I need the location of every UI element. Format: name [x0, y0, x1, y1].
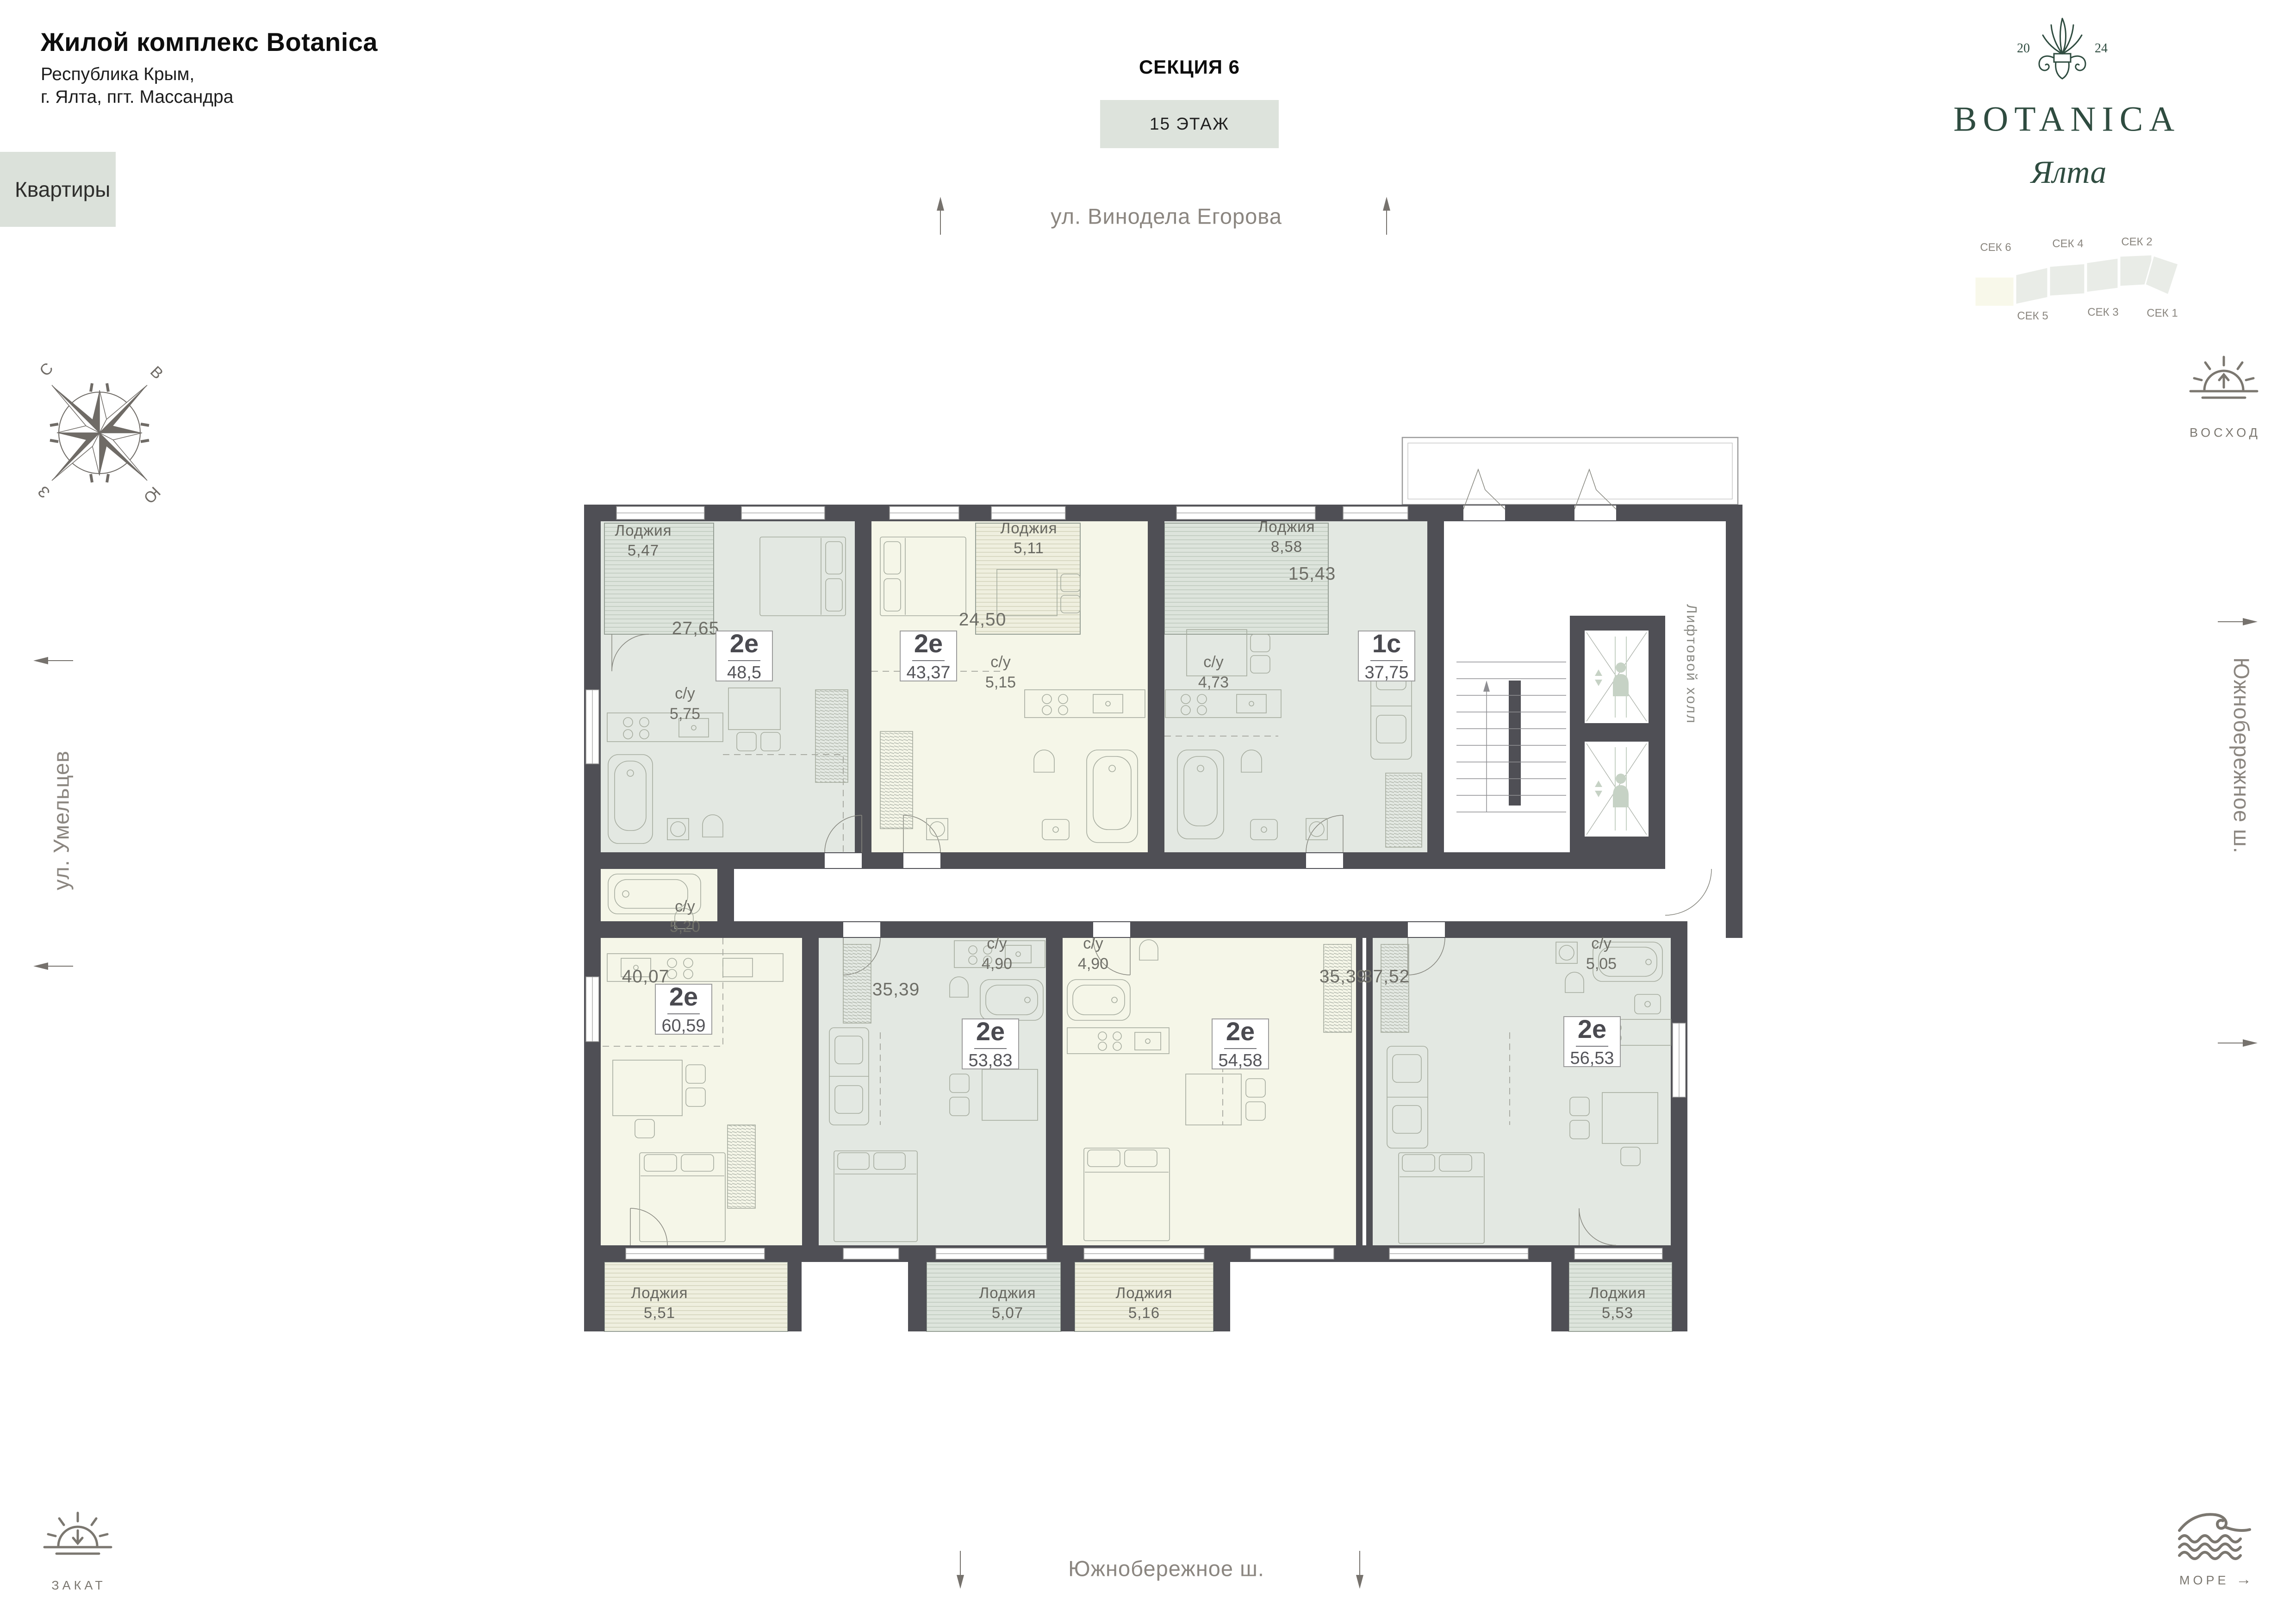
sea-icon [2173, 1510, 2256, 1561]
loggia-label-apt3: Лоджия8,58 [1258, 517, 1315, 557]
street-right-label: Южнобережное ш. [2229, 657, 2254, 854]
arrow-up-icon [934, 196, 946, 236]
sea-caption: МОРЕ [2179, 1574, 2229, 1587]
arrow-left-icon [32, 960, 74, 972]
section-map-label-2: СЕК 2 [2121, 236, 2152, 249]
apartments-tab[interactable]: Квартиры [0, 152, 116, 227]
unit-card-apt4[interactable]: 2е60,59 [655, 984, 712, 1035]
logo-year-left: 20 [2017, 41, 2030, 56]
sunrise-icon [2187, 354, 2261, 407]
arrow-up-icon [1381, 196, 1393, 236]
section-block-3[interactable] [2086, 258, 2118, 293]
section-map-label-6: СЕК 6 [1980, 241, 2011, 254]
section-map-label-1: СЕК 1 [2147, 307, 2178, 320]
loggia-label-apt1: Лоджия5,47 [615, 521, 672, 561]
sea-arrow-icon: → [2236, 1571, 2252, 1588]
unit-card-apt6[interactable]: 2е54,58 [1212, 1018, 1269, 1069]
compass-icon: С В З Ю [28, 352, 171, 509]
loggia-label-apt4: Лоджия5,51 [631, 1283, 688, 1323]
living-area-apt2: 24,50 [959, 610, 1007, 630]
palmette-logo-icon [2032, 13, 2093, 87]
brochure-page: Жилой комплекс Botanica Республика Крым,… [0, 0, 2296, 1624]
floor-plan [584, 431, 1743, 1368]
arrow-down-icon [954, 1550, 966, 1590]
sunrise-caption: ВОСХОД [2190, 426, 2261, 440]
section-map: СЕК 6 СЕК 4 СЕК 2 СЕК 5 СЕК 3 СЕК 1 [1969, 238, 2187, 326]
arrow-left-icon [32, 655, 74, 667]
compass-letter-n: С [36, 359, 56, 380]
page-title: Жилой комплекс Botanica [41, 27, 378, 57]
loggia-label-apt7: Лоджия5,53 [1589, 1283, 1646, 1323]
unit-card-apt2[interactable]: 2е43,37 [900, 631, 957, 681]
section-map-label-3: СЕК 3 [2087, 306, 2118, 319]
section-block-6[interactable] [1975, 277, 2014, 306]
floor-badge[interactable]: 15 ЭТАЖ [1100, 100, 1279, 148]
brand-city-script: Ялта [2031, 154, 2107, 191]
unit-card-apt7[interactable]: 2е56,53 [1563, 1016, 1621, 1067]
unit-card-apt5[interactable]: 2е53,83 [962, 1018, 1019, 1069]
living-area-apt1: 27,65 [672, 618, 720, 639]
header-block: Жилой комплекс Botanica Республика Крым,… [41, 27, 378, 109]
unit-card-apt3[interactable]: 1с37,75 [1358, 631, 1415, 681]
section-map-label-5: СЕК 5 [2017, 310, 2048, 323]
compass-letter-w: З [34, 482, 53, 501]
section-title: СЕКЦИЯ 6 [1139, 56, 1240, 78]
terrace [1402, 437, 1738, 505]
sunset-caption: ЗАКАТ [51, 1579, 106, 1593]
arrow-right-icon [2217, 616, 2259, 628]
wc-label-apt7: с/у5,05 [1586, 933, 1617, 974]
apartments-tab-label: Квартиры [0, 177, 110, 202]
arrow-down-icon [1354, 1550, 1366, 1590]
sea-caption-row: МОРЕ → [2179, 1571, 2252, 1589]
wc-label-apt1: с/у5,75 [670, 683, 700, 724]
street-left-label: ул. Умельцев [49, 750, 74, 890]
wc-label-apt5: с/у4,90 [982, 933, 1012, 974]
unit-card-apt1[interactable]: 2е48,5 [716, 631, 773, 681]
brand-logo: BOTANICA [1954, 100, 2181, 140]
wc-label-apt3: с/у4,73 [1198, 652, 1229, 693]
page-subtitle: Республика Крым, г. Ялта, пгт. Массандра [41, 63, 378, 109]
wc-label-apt4: с/у5,20 [670, 896, 700, 937]
section-map-label-4: СЕК 4 [2052, 237, 2083, 250]
subtitle-line2: г. Ялта, пгт. Массандра [41, 86, 378, 109]
loggia-label-apt2: Лоджия5,11 [1001, 518, 1058, 558]
living-area-apt7: 37,52 [1363, 967, 1410, 987]
street-bottom-label: Южнобережное ш. [1068, 1556, 1264, 1581]
compass-letter-s: Ю [140, 483, 164, 507]
compass-letter-e: В [147, 363, 167, 383]
street-top-label: ул. Винодела Егорова [1051, 204, 1282, 229]
living-area-apt5: 35,39 [872, 980, 920, 1000]
living-area-apt6: 35,39 [1319, 967, 1367, 987]
section-block-5[interactable] [2016, 267, 2048, 305]
loggia-label-apt5: Лоджия5,07 [979, 1283, 1036, 1323]
elevator-hall-label: Лифтовой холл [1683, 588, 1700, 741]
sunset-icon [41, 1510, 115, 1563]
arrow-right-icon [2217, 1037, 2259, 1049]
logo-year-right: 24 [2095, 41, 2108, 56]
wc-label-apt2: с/у5,15 [985, 652, 1016, 693]
compass-rose [50, 383, 149, 482]
wc-label-apt6: с/у4,90 [1078, 933, 1108, 974]
loggia-label-apt6: Лоджия5,16 [1116, 1283, 1173, 1323]
subtitle-line1: Республика Крым, [41, 63, 378, 86]
living-area-apt3: 15,43 [1288, 564, 1336, 584]
section-block-4[interactable] [2049, 263, 2085, 296]
floor-badge-label: 15 ЭТАЖ [1150, 114, 1229, 134]
